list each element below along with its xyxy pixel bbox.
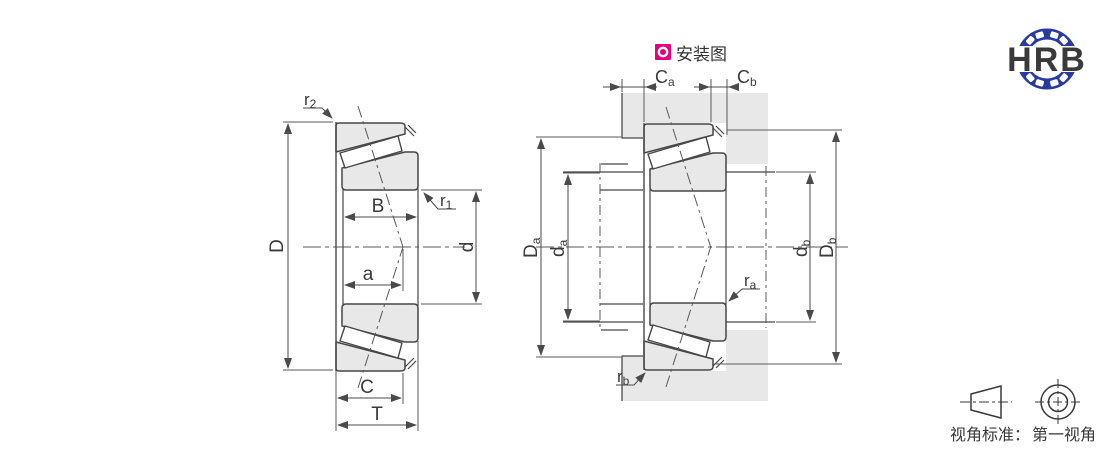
left-bearing-bottom-half (336, 247, 418, 388)
label-Cb: Cb (737, 67, 757, 89)
view-standard-note: 视角标准：第一视角 (950, 379, 1096, 444)
install-diagram-header: 安装图 (655, 44, 727, 64)
label-C: C (360, 377, 374, 398)
label-r2-leader: r2 (303, 90, 332, 118)
logo-text: HRB (1007, 41, 1087, 79)
left-view-bearing-section: D B d a C T r2 r1 (267, 90, 482, 431)
label-a: a (363, 264, 374, 285)
label-r1-leader: r1 (424, 191, 456, 212)
right-bearing-bottom-half (644, 246, 726, 387)
label-Ca: Ca (655, 67, 675, 89)
right-view-mounting-diagram: Ca Cb Da da db Db ra rb 安装图 (521, 44, 848, 401)
label-T: T (371, 404, 383, 425)
label-D: D (267, 239, 288, 253)
label-B: B (372, 196, 385, 217)
hrb-logo: HRB (997, 31, 1097, 87)
label-db: db (791, 239, 813, 257)
first-angle-cone-icon (960, 386, 1012, 418)
label-d: d (457, 242, 478, 253)
install-badge-icon (655, 44, 671, 60)
right-bearing-top-half (644, 107, 726, 248)
label-ra-leader: ra (729, 271, 760, 301)
first-angle-circles-icon (1035, 379, 1081, 425)
view-standard-text: 视角标准：第一视角 (950, 426, 1096, 444)
label-Db: Db (817, 237, 839, 258)
bearing-drawing-canvas: D B d a C T r2 r1 (0, 0, 1110, 452)
left-bearing-top-half (336, 106, 418, 247)
label-da: da (548, 239, 570, 257)
technical-drawing: D B d a C T r2 r1 (0, 0, 1110, 452)
install-diagram-label: 安装图 (676, 45, 727, 64)
label-Da: Da (521, 237, 543, 258)
